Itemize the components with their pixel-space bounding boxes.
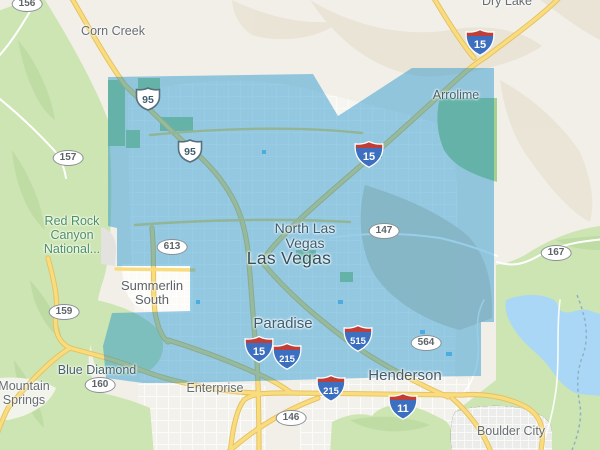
label-mtn-springs-line2: Springs [0,394,50,408]
label-boulder-city: Boulder City [477,424,545,438]
label-henderson: Henderson [368,367,441,384]
label-paradise: Paradise [253,315,312,332]
map-canvas[interactable]: 95 95 156 157 613 159 160 147 167 146 56… [0,0,600,450]
label-summerlin-line1: Summerlin [121,279,183,293]
label-nlv-line1: North Las [275,221,336,236]
label-enterprise: Enterprise [187,381,244,395]
label-summerlin-line2: South [121,293,183,307]
label-blue-diamond: Blue Diamond [58,363,137,377]
label-layer: Corn Creek Dry Lake Arrolime Red Rock Ca… [0,0,600,450]
label-red-rock-canyon: Red Rock Canyon National... [44,214,100,256]
label-mtn-springs-line1: Mountain [0,380,50,394]
label-las-vegas: Las Vegas [247,248,331,269]
label-dry-lake: Dry Lake [482,0,532,8]
label-red-rock-line1: Red Rock [44,214,100,228]
label-north-las-vegas: North Las Vegas [275,221,336,251]
label-mountain-springs: Mountain Springs [0,380,50,407]
label-arrolime: Arrolime [433,88,480,102]
label-red-rock-line2: Canyon [44,228,100,242]
label-red-rock-line3: National... [44,242,100,256]
label-summerlin-south: Summerlin South [121,279,183,306]
label-corn-creek: Corn Creek [81,24,145,38]
